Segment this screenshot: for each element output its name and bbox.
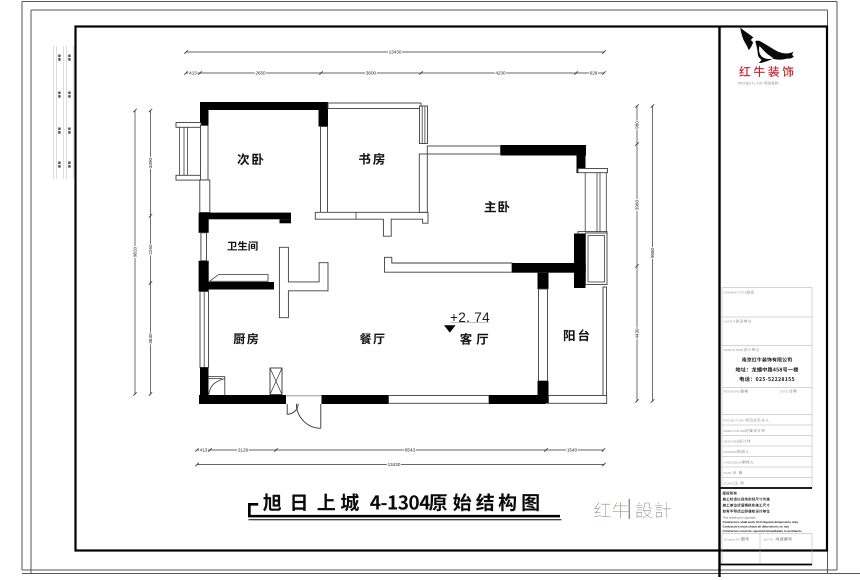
svg-text:2250: 2250 [148, 244, 153, 255]
svg-text:3390: 3390 [148, 157, 153, 168]
svg-text:9680: 9680 [650, 247, 655, 258]
svg-text:PROJECT DIR.: PROJECT DIR. [724, 419, 745, 423]
svg-text:13430: 13430 [388, 462, 401, 467]
svg-text:REVISIONS: REVISIONS [724, 390, 740, 394]
svg-text:4430: 4430 [635, 328, 640, 339]
svg-text:3630: 3630 [148, 333, 153, 344]
svg-text:413: 413 [200, 448, 208, 453]
svg-text:DESIGN FIRM: DESIGN FIRM [724, 348, 744, 352]
svg-text:3600: 3600 [366, 71, 377, 76]
svg-text:Contractors must be reported i: Contractors must be reported immediately… [723, 529, 803, 533]
svg-text:980: 980 [635, 121, 640, 129]
svg-text:+2. 74: +2. 74 [450, 310, 490, 325]
svg-text:2129: 2129 [238, 448, 249, 453]
svg-text:413: 413 [189, 71, 197, 76]
svg-text:8543: 8543 [405, 448, 416, 453]
svg-text:DRAWING TITLE: DRAWING TITLE [724, 291, 747, 295]
svg-text:PROJECT L.T./E: PROJECT L.T./E [738, 82, 763, 86]
svg-text:DATE: DATE [724, 471, 732, 475]
svg-text:SCALE: SCALE [724, 482, 734, 486]
svg-text:LAYOUT: LAYOUT [724, 320, 736, 324]
svg-text:DESIGNER: DESIGNER [724, 440, 741, 444]
svg-text:Drawing NO: Drawing NO [724, 538, 741, 542]
svg-text:13430: 13430 [389, 50, 402, 55]
svg-text:DATE: DATE [780, 390, 788, 394]
svg-text:This drawing is copyright: This drawing is copyright [723, 516, 756, 520]
svg-text:1540: 1540 [567, 448, 578, 453]
svg-text:3960: 3960 [635, 199, 640, 210]
svg-text:2650: 2650 [255, 71, 266, 76]
svg-text:Job NO: Job NO [763, 538, 774, 542]
svg-text:DIRECTOR DER: DIRECTOR DER [724, 429, 748, 433]
svg-text:Contractors shall work from fi: Contractors shall work from figured dime… [723, 520, 799, 524]
svg-text:Contractors must check all dim: Contractors must check all dimensions on… [723, 525, 790, 529]
svg-text:629: 629 [590, 71, 598, 76]
svg-text:DRAWING: DRAWING [724, 450, 739, 454]
svg-text:CHECKED BY: CHECKED BY [724, 461, 744, 465]
svg-text:9620: 9620 [133, 246, 138, 257]
svg-text:4230: 4230 [495, 71, 506, 76]
